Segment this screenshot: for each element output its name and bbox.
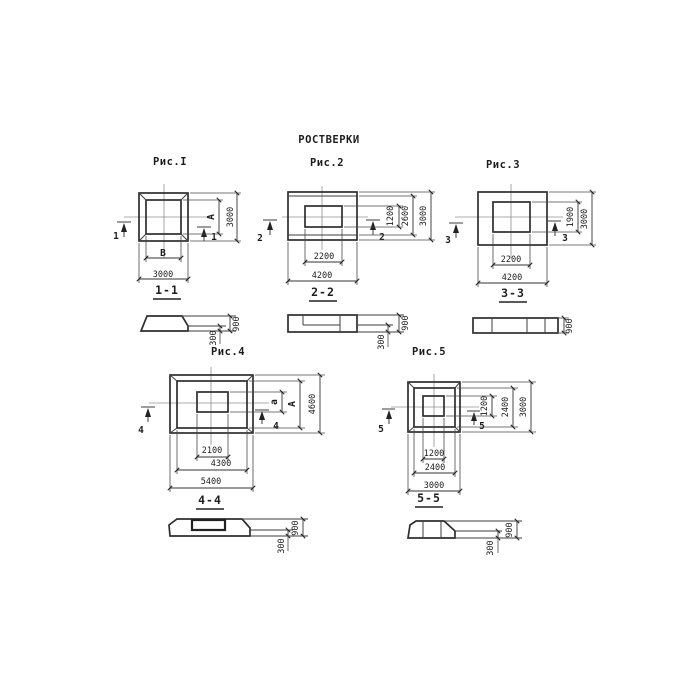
fig3-dim-inner-width: 2200 (501, 255, 521, 265)
fig5-dim-w1: 1200 (424, 449, 444, 459)
fig2-dim-outer-width: 4200 (312, 271, 332, 281)
fig3-cut-left: 3 (445, 235, 451, 246)
drawing-title: РОСТВЕРКИ (298, 134, 359, 146)
fig2-dim-h2: 2600 (401, 206, 411, 226)
fig2-section-label: 2-2 (311, 285, 335, 299)
paper-background (0, 0, 700, 700)
fig3-section-label: 3-3 (501, 286, 525, 300)
fig1-section-ledge-height: 300 (209, 330, 219, 345)
technical-drawing: РОСТВЕРКИ Рис.I 1 1 В 3000 А 3000 1-1 (0, 0, 700, 700)
fig1-section-total-height: 900 (232, 316, 242, 331)
fig5-section-label: 5-5 (417, 491, 441, 505)
fig5-dim-w2: 2400 (425, 463, 445, 473)
fig3-section-total-height: 900 (565, 318, 575, 333)
fig5-section-ledge-height: 300 (486, 540, 496, 555)
fig3-dim-outer-width: 4200 (502, 273, 522, 283)
fig5-section-total-height: 900 (505, 522, 515, 537)
fig4-cut-right: 4 (273, 421, 279, 432)
fig4-dim-h2: А (287, 401, 298, 407)
fig4-dim-h1: а (269, 399, 280, 405)
fig3-dim-outer-height: 3000 (580, 209, 590, 229)
fig1-dim-inner-width: В (160, 248, 166, 259)
fig2-dim-h3: 3000 (419, 206, 429, 226)
fig1-cut-left: 1 (113, 231, 119, 242)
fig4-dim-w1: 2100 (202, 446, 222, 456)
fig3-dim-inner-height: 1900 (566, 207, 576, 227)
fig4-dim-h3: 4600 (308, 394, 318, 414)
fig5-dim-h3: 3000 (519, 397, 529, 417)
fig5-dim-w3: 3000 (424, 481, 444, 491)
fig1-dim-outer-width: 3000 (153, 270, 173, 280)
fig5-dim-h1: 1200 (480, 396, 490, 416)
fig5-caption: Рис.5 (412, 346, 446, 358)
fig5-cut-right: 5 (479, 421, 485, 432)
fig2-dim-h1: 1200 (386, 206, 396, 226)
fig2-cut-right: 2 (379, 232, 385, 243)
fig4-cut-left: 4 (138, 425, 144, 436)
fig2-section-ledge-height: 300 (377, 334, 387, 349)
fig4-section-label: 4-4 (198, 493, 222, 507)
fig4-dim-w2: 4300 (211, 459, 231, 469)
fig2-dim-inner-width: 2200 (314, 252, 334, 262)
fig1-section-label: 1-1 (155, 283, 179, 297)
fig2-section-total-height: 900 (401, 315, 411, 330)
fig5-dim-h2: 2400 (501, 397, 511, 417)
fig4-dim-w3: 5400 (201, 477, 221, 487)
fig4-caption: Рис.4 (211, 346, 245, 358)
fig4-section-ledge-height: 300 (277, 538, 287, 553)
fig2-cut-left: 2 (257, 233, 263, 244)
fig1-dim-inner-height: А (206, 214, 217, 220)
fig3-caption: Рис.3 (486, 159, 520, 171)
fig1-caption: Рис.I (153, 156, 187, 168)
fig3-cut-right: 3 (562, 233, 568, 244)
fig2-caption: Рис.2 (310, 157, 344, 169)
fig1-dim-outer-height: 3000 (226, 207, 236, 227)
fig5-cut-left: 5 (378, 424, 384, 435)
scanned-drawing-page: РОСТВЕРКИ Рис.I 1 1 В 3000 А 3000 1-1 (0, 0, 700, 700)
fig4-section-total-height: 900 (291, 520, 301, 535)
